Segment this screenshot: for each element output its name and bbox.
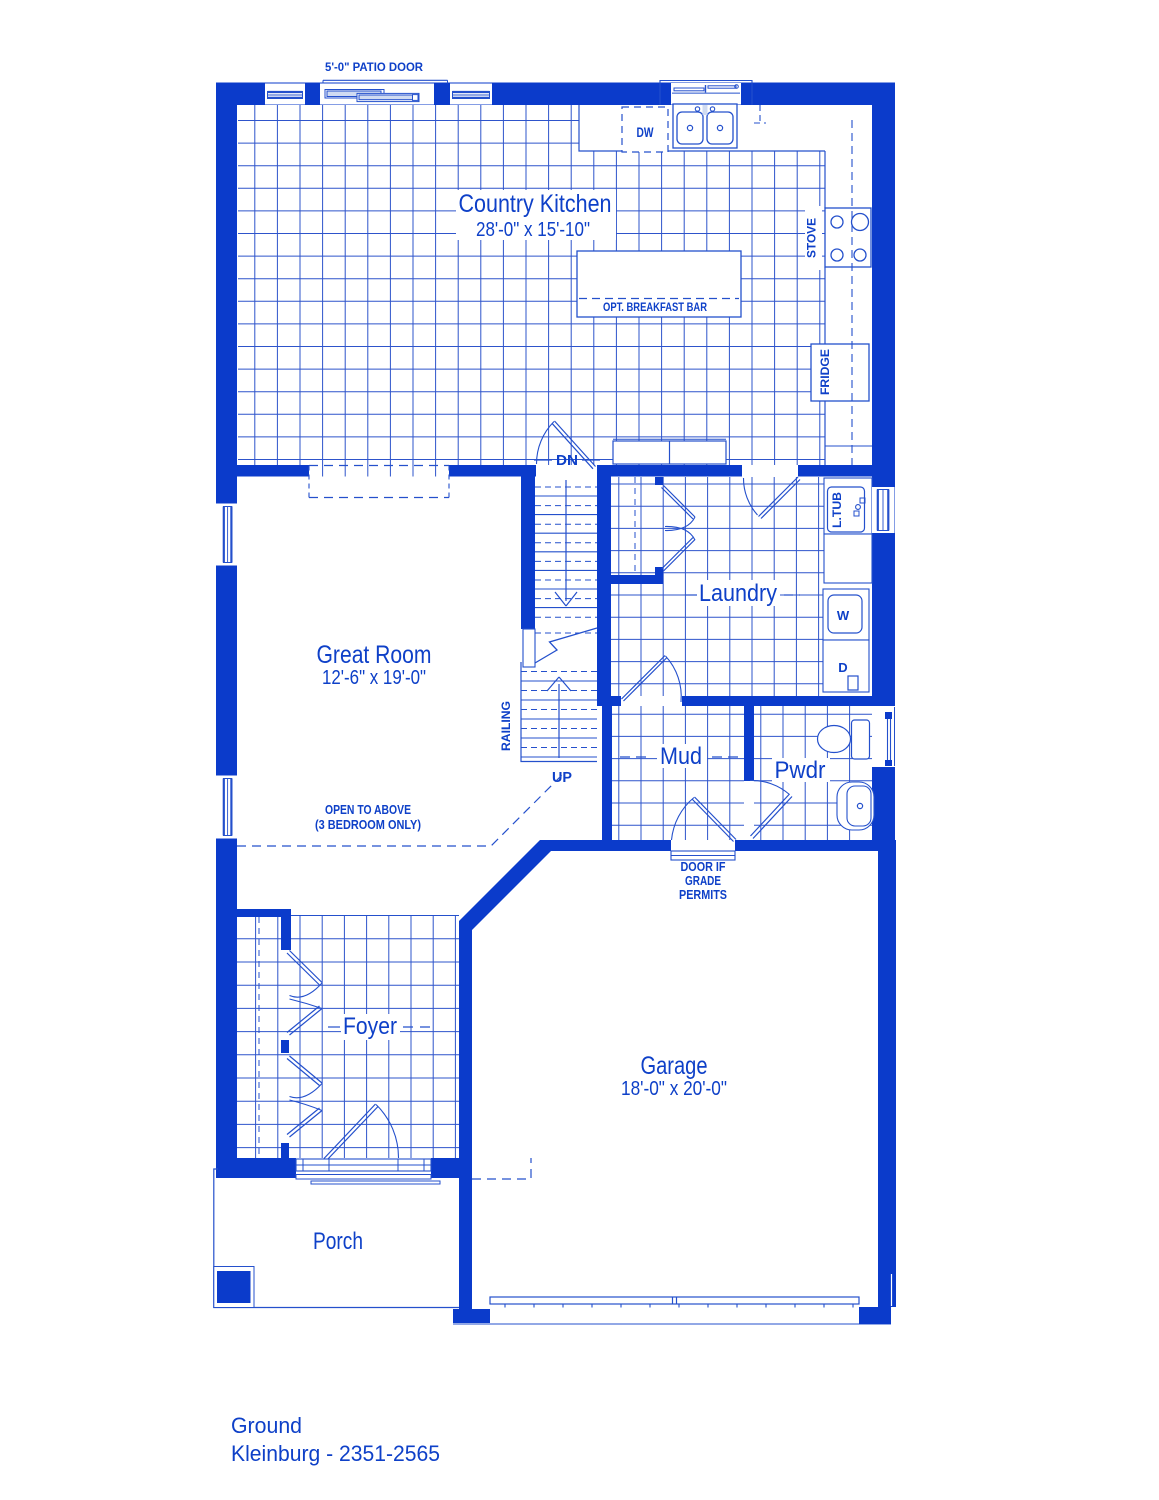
svg-text:D: D bbox=[838, 660, 847, 675]
svg-text:Foyer: Foyer bbox=[343, 1013, 397, 1040]
svg-text:PERMITS: PERMITS bbox=[679, 887, 727, 902]
svg-text:DOOR IF: DOOR IF bbox=[681, 859, 726, 874]
svg-text:STOVE: STOVE bbox=[807, 218, 819, 258]
svg-text:Porch: Porch bbox=[313, 1228, 363, 1255]
svg-text:Garage: Garage bbox=[641, 1052, 708, 1080]
svg-text:RAILING: RAILING bbox=[501, 701, 513, 751]
svg-text:Pwdr: Pwdr bbox=[775, 757, 826, 784]
svg-text:L.TUB: L.TUB bbox=[832, 492, 844, 528]
svg-text:OPT. BREAKFAST BAR: OPT. BREAKFAST BAR bbox=[603, 302, 708, 314]
svg-text:Kleinburg - 2351-2565: Kleinburg - 2351-2565 bbox=[231, 1441, 440, 1466]
svg-text:GRADE: GRADE bbox=[685, 873, 721, 888]
svg-text:Mud: Mud bbox=[660, 743, 702, 770]
svg-text:Great Room: Great Room bbox=[317, 641, 432, 669]
svg-text:Laundry: Laundry bbox=[699, 580, 777, 607]
svg-text:DN: DN bbox=[556, 453, 578, 469]
svg-text:28'-0" x 15'-10": 28'-0" x 15'-10" bbox=[476, 219, 590, 241]
svg-text:18'-0" x 20'-0": 18'-0" x 20'-0" bbox=[621, 1078, 727, 1100]
svg-text:OPEN TO ABOVE: OPEN TO ABOVE bbox=[325, 802, 411, 817]
svg-text:UP: UP bbox=[552, 770, 572, 786]
svg-text:5'-0" PATIO DOOR: 5'-0" PATIO DOOR bbox=[325, 60, 423, 74]
svg-text:(3 BEDROOM ONLY): (3 BEDROOM ONLY) bbox=[315, 817, 421, 832]
svg-text:FRIDGE: FRIDGE bbox=[820, 349, 832, 395]
svg-text:Ground: Ground bbox=[231, 1413, 302, 1438]
svg-text:12'-6" x 19'-0": 12'-6" x 19'-0" bbox=[322, 667, 426, 689]
svg-text:Country Kitchen: Country Kitchen bbox=[459, 190, 612, 218]
svg-text:W: W bbox=[837, 608, 850, 623]
svg-text:DW: DW bbox=[637, 125, 654, 140]
